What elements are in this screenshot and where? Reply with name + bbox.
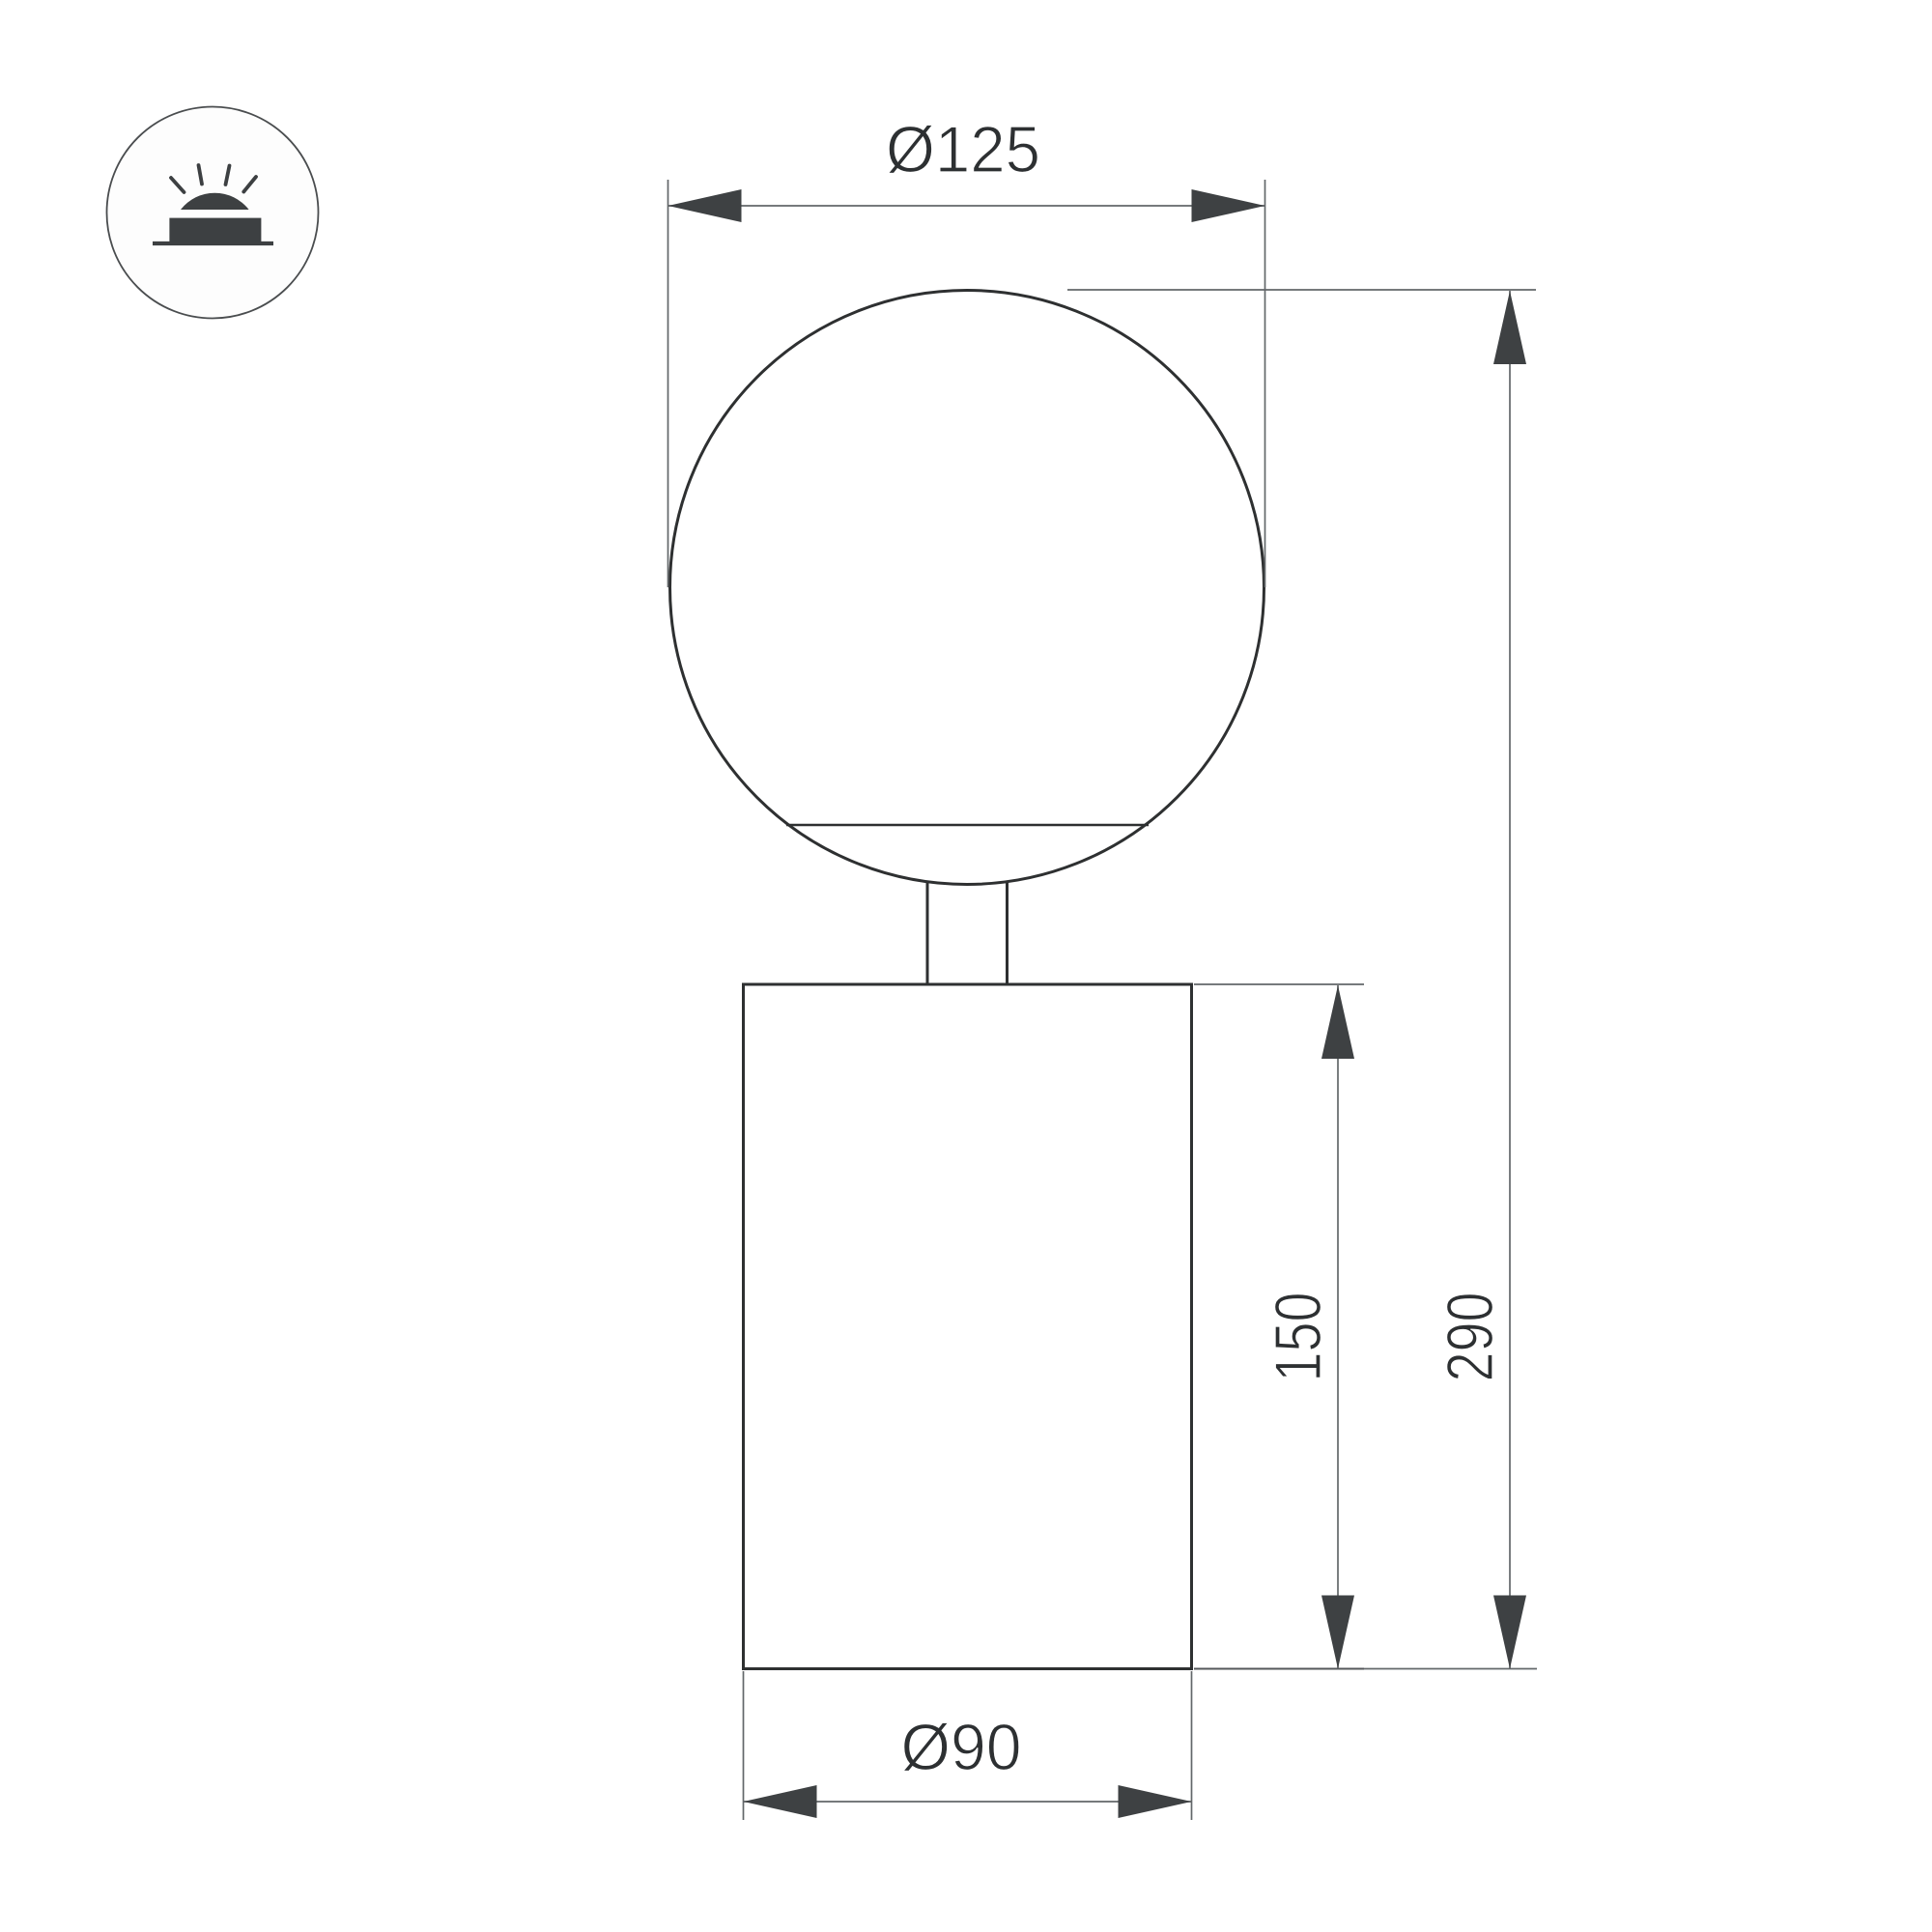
- svg-text:Ø90: Ø90: [901, 1711, 1022, 1784]
- svg-text:Ø125: Ø125: [886, 113, 1040, 186]
- svg-text:290: 290: [1434, 1293, 1507, 1382]
- svg-text:150: 150: [1262, 1293, 1335, 1382]
